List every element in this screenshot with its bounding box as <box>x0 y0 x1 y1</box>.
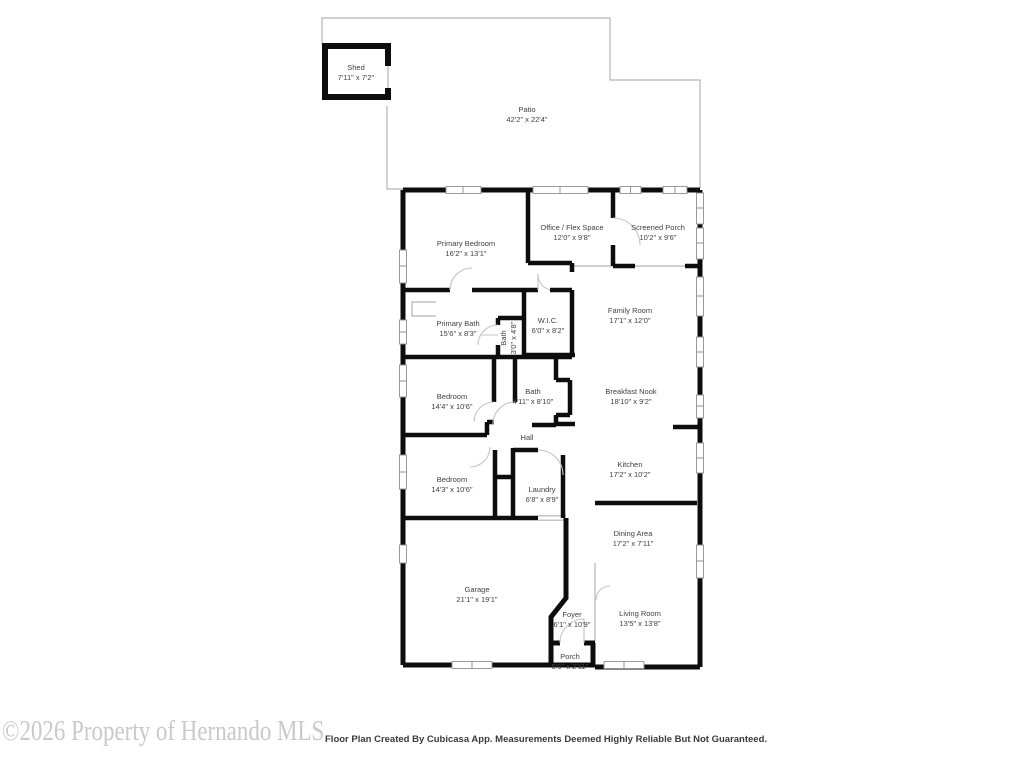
floor-plan-page: Shed7'11" x 7'2" Patio42'2" x 22'4" Prim… <box>0 0 1024 768</box>
room-label-garage: Garage21'1" x 19'1" <box>456 585 497 604</box>
floor-plan-image: Shed7'11" x 7'2" Patio42'2" x 22'4" Prim… <box>0 0 1024 768</box>
shower-outline <box>412 302 436 316</box>
room-label-family-room: Family Room17'1" x 12'0" <box>608 306 652 325</box>
room-label-screened-porch: Screened Porch10'2" x 9'6" <box>631 223 685 242</box>
room-label-kitchen: Kitchen17'2" x 10'2" <box>609 460 650 479</box>
room-label-breakfast-nook: Breakfast Nook18'10" x 9'2" <box>605 387 657 406</box>
room-label-bath-2: Bath4'11" x 8'10" <box>513 387 554 406</box>
room-label-porch: Porch5'6" x 2'11" <box>552 652 589 671</box>
mls-watermark: ©2026 Property of Hernando MLS <box>2 716 324 748</box>
door-swings <box>450 218 640 643</box>
room-label-foyer: Foyer6'1" x 10'9" <box>554 610 591 629</box>
room-labels: Shed7'11" x 7'2" Patio42'2" x 22'4" Prim… <box>338 63 685 671</box>
room-label-patio: Patio42'2" x 22'4" <box>506 105 547 124</box>
room-label-primary-bath: Primary Bath15'6" x 8'3" <box>436 319 479 338</box>
room-label-bedroom-2: Bedroom14'3" x 10'6" <box>431 475 472 494</box>
room-label-office-flex-space: Office / Flex Space12'0" x 9'8" <box>540 223 603 242</box>
room-label-dining-area: Dining Area17'2" x 7'11" <box>613 529 654 548</box>
room-label-hall: Hall <box>521 433 534 442</box>
room-label-wic: W.I.C.6'0" x 8'2" <box>532 316 565 335</box>
room-label-shed: Shed7'11" x 7'2" <box>338 63 375 82</box>
windows <box>400 187 704 669</box>
room-label-laundry: Laundry6'8" x 8'9" <box>526 485 559 504</box>
room-label-primary-bedroom: Primary Bedroom16'2" x 13'1" <box>437 239 495 258</box>
cubicasa-disclaimer: Floor Plan Created By Cubicasa App. Meas… <box>325 734 767 745</box>
room-label-living-room: Living Room13'5" x 13'8" <box>619 609 661 628</box>
room-label-bedroom-1: Bedroom14'4" x 10'6" <box>431 392 472 411</box>
room-label-bath-small: Bath3'0" x 4'8" <box>499 321 518 354</box>
